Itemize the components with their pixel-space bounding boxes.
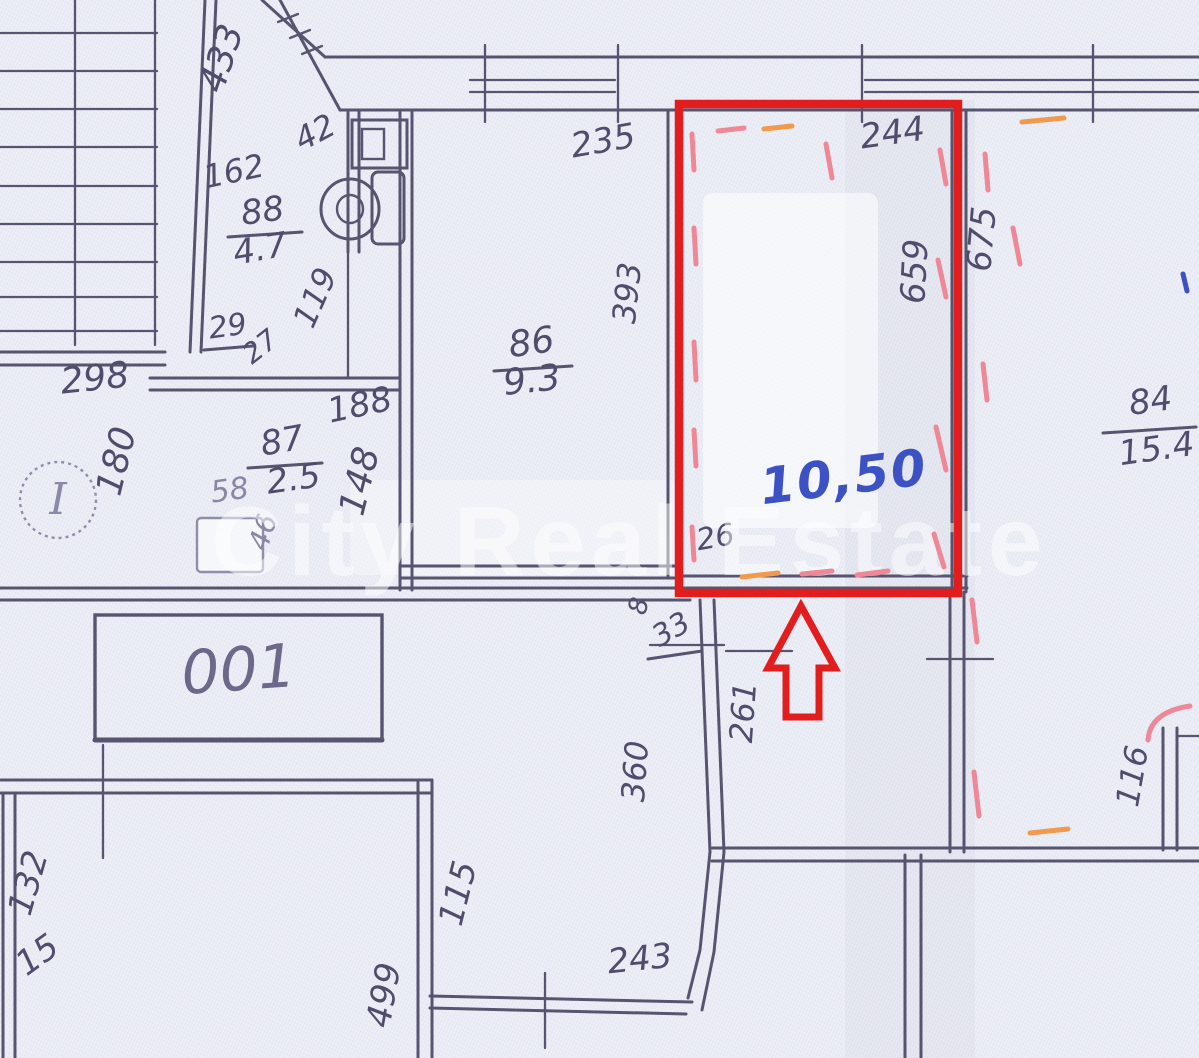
red-dash-mark	[692, 134, 694, 170]
wall	[702, 852, 724, 1010]
room-86-area-label: 9.3	[501, 357, 562, 404]
dim-393-label: 393	[605, 260, 649, 325]
dim-42-label: 42	[288, 106, 342, 159]
red-dash-mark	[985, 154, 988, 190]
dim-261-label: 261	[722, 680, 764, 744]
wall	[700, 600, 710, 852]
red-dash-mark	[692, 527, 694, 560]
dim-33-label: 33	[646, 605, 697, 654]
blue-mark	[1183, 274, 1187, 291]
dim-499-label: 499	[359, 960, 410, 1031]
dim-116-label: 116	[1108, 743, 1156, 810]
dim-298-label: 298	[58, 355, 131, 403]
floor-plan-svg: 43342162884.71192927298180188872.5584614…	[0, 0, 1199, 1058]
fraction-bar	[648, 651, 702, 659]
room-84-number-label: 84	[1126, 378, 1174, 424]
highlight-arrow-up	[768, 606, 835, 717]
door-001-label: 001	[179, 631, 298, 709]
red-dash-mark	[694, 342, 696, 380]
red-dash-mark	[1030, 829, 1068, 833]
red-dash-mark	[1013, 228, 1020, 264]
red-dash-mark	[718, 128, 744, 131]
dim-243-label: 243	[605, 936, 674, 983]
red-dash-mark	[694, 228, 696, 264]
stair-marker-label: I	[48, 474, 68, 525]
dim-659-label: 659	[893, 238, 936, 305]
wall	[430, 996, 692, 1002]
room-88-area-label: 4.7	[230, 225, 291, 274]
dim-433-label: 433	[192, 19, 252, 97]
dim-188-label: 188	[324, 379, 396, 432]
floor-plan-scan: 43342162884.71192927298180188872.5584614…	[0, 0, 1199, 1058]
toilet-bowl-icon	[321, 179, 379, 239]
dim-180-label: 180	[89, 423, 145, 500]
red-dash-mark	[802, 571, 832, 574]
red-dash-mark	[1022, 118, 1064, 122]
red-dash-mark	[764, 126, 792, 129]
red-dash-mark	[694, 430, 696, 466]
dim-360-label: 360	[614, 739, 656, 803]
dim-119-label: 119	[285, 262, 345, 333]
sink-basin-icon	[362, 129, 384, 159]
wall	[430, 1008, 686, 1014]
dim-115-label: 115	[431, 857, 486, 930]
red-dash-mark	[983, 364, 987, 400]
dim-15-label: 15	[8, 926, 67, 984]
dim-235-label: 235	[568, 116, 639, 167]
red-dash-mark	[826, 144, 832, 178]
wall	[688, 852, 710, 998]
dim-8-label: 8	[623, 594, 656, 617]
dim-132-label: 132	[0, 846, 56, 919]
dim-675-label: 675	[959, 205, 1005, 273]
watermark: City Real Estate	[212, 486, 1049, 596]
